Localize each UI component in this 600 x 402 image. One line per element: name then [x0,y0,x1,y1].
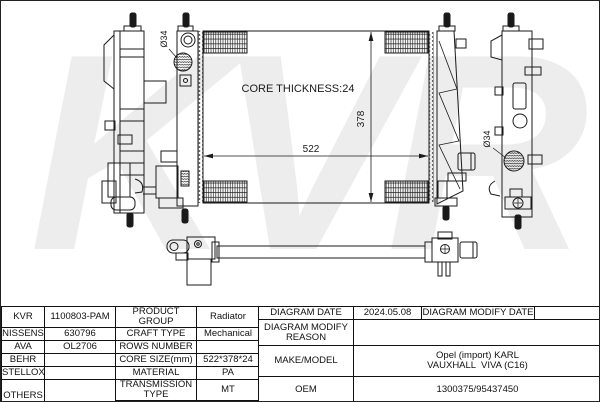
core-size-value: 522*378*24 [197,353,260,366]
core-hatch-top-left [204,32,247,53]
make-model-label: MAKE/MODEL [259,346,354,377]
core-hatch-bottom-right [385,181,428,202]
craft-type-value: Mechanical [197,327,260,340]
mount-pin-icon [508,13,514,27]
behr-part-number [45,353,116,366]
catalog-sheet: KVR [0,0,600,402]
serrated-edge [198,31,203,203]
diagram-modify-date-label: DIAGRAM MODIFY DATE [422,307,535,320]
rows-number-value [197,340,260,353]
outlet-port-icon [504,151,524,171]
core-size-label: CORE SIZE(mm) [116,353,197,366]
others-part-number [45,379,116,402]
core-width-dim-label: 522 [303,144,320,155]
core-hatch-top-right [385,32,428,53]
transmission-type-label: TRANSMISSION TYPE [116,379,197,400]
right-port-diameter-label: Ø34 [482,130,492,147]
modify-reason-label: DIAGRAM MODIFY REASON [259,320,354,346]
oem-value: 1300375/95437450 [354,377,600,402]
core-hatch-bottom-left [204,181,247,202]
make-model-line-2: VAUXHALL VIVA (C16) [354,361,600,371]
core-thickness-label: CORE THICKNESS:24 [242,83,355,95]
mount-pin-icon [183,13,189,27]
mount-pin-icon [443,206,449,220]
brand-stellox: STELLOX [2,366,45,379]
core-height-dim-label: 378 [356,110,367,127]
stellox-part-number [45,366,116,379]
material-value: PA [197,366,260,379]
inlet-port-icon [174,53,192,71]
rows-number-label: ROWS NUMBER [116,340,197,353]
product-group-value: Radiator [197,307,260,328]
ava-part-number: OL2706 [45,340,116,353]
serrated-edge [429,32,434,202]
mount-pin-icon [130,13,136,27]
mount-pin-icon [444,13,450,27]
transmission-type-value: MT [197,379,260,400]
brand-others: OTHERS [2,379,45,402]
mount-pin-icon [127,213,133,227]
brand-nissens: NISSENS [2,327,45,340]
diagram-date-value: 2024.05.08 [354,307,422,320]
radiator-technical-drawing: KVR [1,1,599,306]
material-label: MATERIAL [116,366,197,379]
make-model-value: Opel (import) KARL VAUXHALL VIVA (C16) [354,346,600,377]
diagram-modify-date-value [535,307,600,320]
left-port-diameter-label: Ø34 [159,30,169,47]
spec-table-left: KVR 1100803-PAM PRODUCT GROUP Radiator N… [1,306,260,402]
brand-behr: BEHR [2,353,45,366]
oem-label: OEM [259,377,354,402]
brand-kvr: KVR [2,307,45,328]
spec-table-right: DIAGRAM DATE 2024.05.08 DIAGRAM MODIFY D… [258,306,600,402]
product-group-label: PRODUCT GROUP [116,307,197,328]
diagram-date-label: DIAGRAM DATE [259,307,354,320]
mount-pin-icon [182,209,188,223]
modify-reason-value [354,320,600,346]
craft-type-label: CRAFT TYPE [116,327,197,340]
kvr-part-number: 1100803-PAM [45,307,116,328]
mount-pin-icon [515,215,521,229]
nissens-part-number: 630796 [45,327,116,340]
brand-ava: AVA [2,340,45,353]
